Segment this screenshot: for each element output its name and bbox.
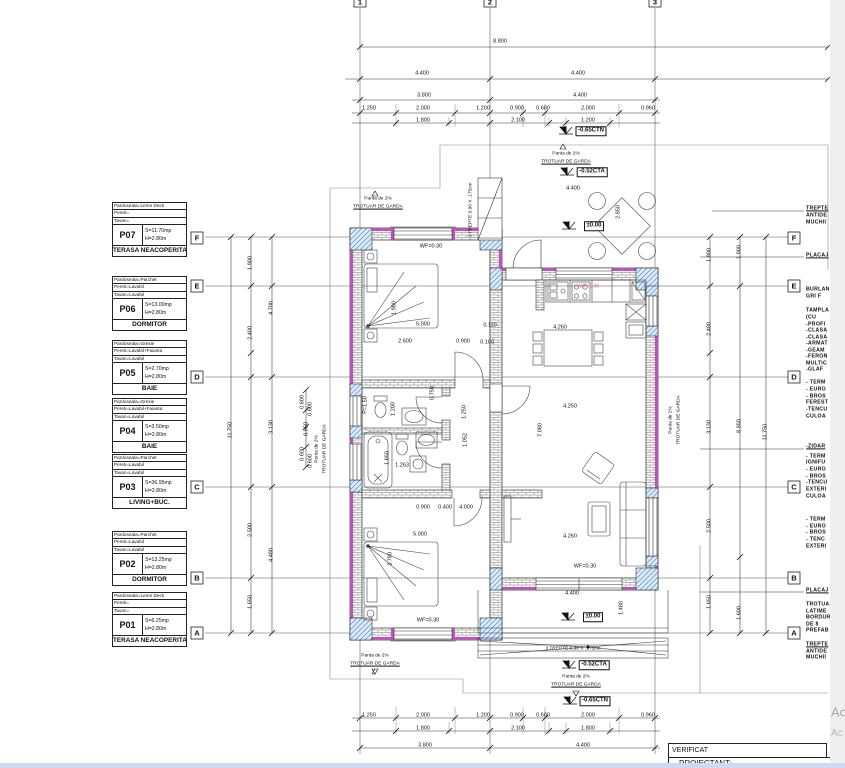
trotuar-label: TROTUAR DE GARDA xyxy=(324,424,329,474)
dim-label: -GLAF xyxy=(806,367,823,372)
dim-label: 3.130 xyxy=(707,420,713,434)
dim-label: MUCHII xyxy=(806,220,826,225)
grid-row-d-right: D xyxy=(791,373,796,381)
finish-row: Pardoseala=Parchet xyxy=(112,454,187,461)
room-area: S=6.25mp xyxy=(145,618,186,624)
dim-label: 1.900 xyxy=(737,245,743,259)
room-code-row: P07S=11.70mpH=2.80m xyxy=(112,224,187,246)
dim-label: FEREST xyxy=(806,400,828,405)
dim-label: 1.250 xyxy=(462,405,468,419)
room-name: DORMITOR xyxy=(112,320,187,331)
interior-doors xyxy=(416,352,530,526)
dim-label: 3.800 xyxy=(418,743,432,749)
room-height: H=2.80m xyxy=(145,432,186,438)
dim-label: 1.200 xyxy=(476,106,490,112)
dim-label: GRI F xyxy=(806,294,821,299)
level-cta-top: -0.52CTA xyxy=(577,167,608,177)
trotuar-label: TROTUAR DE GARDA xyxy=(350,663,400,668)
dim-label: -TENCU xyxy=(806,480,827,485)
legend-room-P03: Pardoseala=ParchetPereti=LavabilTavan=La… xyxy=(112,454,187,509)
grid-row-e-left: E xyxy=(194,282,199,290)
dim-label: 4.250 xyxy=(563,404,577,410)
finish-row: Pereti=Lavabil xyxy=(112,538,187,545)
slope-label: Panta de 2% xyxy=(552,153,579,158)
room-name: LIVING+BUC. xyxy=(112,498,187,509)
finish-row: Pardoseala=Lemn Deck xyxy=(112,202,187,209)
dim-label: 0.900 xyxy=(456,339,470,345)
dim-label: 4.700 xyxy=(269,301,275,315)
dim-label: EXTERI xyxy=(806,487,827,492)
interior-walls xyxy=(362,280,544,498)
slope-label: Panta de 2% xyxy=(670,406,675,433)
dim-label: 4.400 xyxy=(571,71,585,77)
grid-row-c-left: C xyxy=(194,483,199,491)
room-area: S=13.25mp xyxy=(145,557,186,563)
verificat-row: VERIFICAT xyxy=(668,743,827,758)
grid-row-a-left: A xyxy=(194,629,199,637)
room-name: BAIE xyxy=(112,442,187,453)
dim-label: - TERM xyxy=(806,517,826,522)
level-ctn-bottom: -0.65CTN xyxy=(579,696,610,706)
slope-label: Panta de 2% xyxy=(562,676,589,681)
finish-row: Pereti=Lavabil+Faianta xyxy=(112,405,187,412)
dim-label: 11.750 xyxy=(763,424,769,440)
window-sill-label: WF=0.30 xyxy=(574,564,596,570)
dim-label: - TERM xyxy=(806,380,826,385)
finish-row: Tavan=Lavabil xyxy=(112,291,187,298)
dim-label: IGNIFU xyxy=(806,460,825,465)
dim-label: 0.600 xyxy=(308,454,314,468)
grid-row-c-right: C xyxy=(791,483,796,491)
room-code: P04 xyxy=(113,421,143,441)
dim-label: 1.900 xyxy=(248,256,254,270)
dim-label: TROTUA xyxy=(806,602,829,607)
dim-label: 1.800 xyxy=(416,726,430,732)
dim-label: 2.100 xyxy=(511,726,525,732)
room-name: TERASA NEACOPERITA xyxy=(112,636,187,647)
dim-label: 2.100 xyxy=(511,118,525,124)
room-name: DORMITOR xyxy=(112,575,187,586)
finish-row: Tavan=Lavabil xyxy=(112,413,187,420)
room-height: H=2.80m xyxy=(145,310,186,316)
bed-bottom xyxy=(364,528,438,620)
dim-label: 2.000 xyxy=(416,106,430,112)
dim-label: -CLASA xyxy=(806,328,827,333)
stairs-note-bottom: 3 TREPTE 0.30 X .175cm xyxy=(545,648,600,653)
window-sill-label: WF=0.30 xyxy=(417,618,439,624)
dim-label: 1.650 xyxy=(707,595,713,609)
dim-label: 1.650 xyxy=(248,595,254,609)
dim-label: 4.400 xyxy=(576,743,590,749)
room-area: S=11.70mp xyxy=(145,228,186,234)
slope-label: Panta de 2% xyxy=(361,655,388,660)
finish-row: Tavan= xyxy=(112,217,187,224)
dim-label: 3.130 xyxy=(269,420,275,434)
finish-row: Pardoseala=Gresie xyxy=(112,340,187,347)
entrance-door xyxy=(506,240,542,280)
dimension-lines xyxy=(231,47,828,748)
finish-row: Pardoseala=Lemn Deck xyxy=(112,592,187,599)
dim-label: 0.600 xyxy=(536,106,550,112)
grid-row-f-right: F xyxy=(792,234,797,242)
dim-label: 1.800 xyxy=(581,726,595,732)
room-name: TERASA NEACOPERITA xyxy=(112,246,187,257)
dim-label: 2.000 xyxy=(416,713,430,719)
dim-label: 1.263 xyxy=(395,463,409,469)
dim-label: 4.260 xyxy=(553,325,567,331)
dim-label: TREPTE xyxy=(806,206,828,211)
room-code-row: P02S=13.25mpH=2.80m xyxy=(112,553,187,575)
dim-label: 1.250 xyxy=(362,713,376,719)
finish-row: Pardoseala=Parchet xyxy=(112,531,187,538)
room-code: P03 xyxy=(113,477,143,497)
room-code: P05 xyxy=(113,363,143,383)
dim-label: 0.750 xyxy=(430,386,436,400)
dim-label: 2.400 xyxy=(707,322,713,336)
dim-label: EXTERI xyxy=(806,544,827,549)
dim-label: 0.900 xyxy=(416,505,430,511)
dim-label: 1.480 xyxy=(619,601,625,615)
dim-label: 1.600 xyxy=(737,606,743,620)
dim-label: -TENCU xyxy=(806,407,827,412)
floor-plan-sheet: Pardoseala=Lemn DeckPereti=Tavan=P07S=11… xyxy=(0,0,845,768)
dim-label: 1.650 xyxy=(385,451,391,465)
stairs-top xyxy=(478,178,502,240)
dim-label: PLACAJ xyxy=(806,588,829,593)
legend-room-P07: Pardoseala=Lemn DeckPereti=Tavan=P07S=11… xyxy=(112,202,187,257)
dim-label: 1.900 xyxy=(707,248,713,262)
finish-row: Tavan=Lavabil xyxy=(112,546,187,553)
dim-label: 0.950 xyxy=(304,422,310,436)
grid-col-3: 3 xyxy=(653,0,657,6)
dim-label: 1.200 xyxy=(476,713,490,719)
grid-row-d-left: D xyxy=(194,373,199,381)
dim-label: - EURO xyxy=(806,467,826,472)
dim-label: 0.900 xyxy=(510,106,524,112)
dim-label: 4.400 xyxy=(415,71,429,77)
dim-label: 2.500 xyxy=(707,519,713,533)
dim-label: - EURO xyxy=(806,387,826,392)
legend-room-P01: Pardoseala=Lemn DeckPereti=Tavan=P01S=6.… xyxy=(112,592,187,647)
room-code-row: P03S=36.95mpH=2.80m xyxy=(112,476,187,498)
room-area: S=2.70mp xyxy=(145,366,186,372)
watermark: Ac xyxy=(831,706,845,719)
dim-label: TREPTE xyxy=(806,642,828,647)
kitchen xyxy=(533,280,646,366)
room-code-row: P01S=6.25mpH=2.80m xyxy=(112,614,187,636)
parapet-label: P=1.50 xyxy=(363,396,369,414)
dim-label: - BROS xyxy=(806,530,826,535)
slope-label: Panta de 2% xyxy=(364,198,391,203)
dim-label: 5.000 xyxy=(413,532,427,538)
room-area: S=3.50mp xyxy=(145,424,186,430)
slope-label: Panta de 2% xyxy=(316,435,321,462)
room-height: H=2.80m xyxy=(145,626,186,632)
watermark: Ac xyxy=(831,729,843,739)
trotuar-label: TROTUAR DE GARDA xyxy=(551,684,601,689)
room-code-row: P06S=13.00mpH=2.80m xyxy=(112,298,187,320)
dim-label: MUCHII xyxy=(806,655,826,660)
dim-label: -ARMAT xyxy=(806,341,828,346)
trotuar-label: TROTUAR DE GARDA xyxy=(678,395,683,445)
legend-room-P04: Pardoseala=GresiePereti=Lavabil+FaiantaT… xyxy=(112,398,187,453)
legend-room-P05: Pardoseala=GresiePereti=Lavabil+FaiantaT… xyxy=(112,340,187,395)
dim-label: 2.600 xyxy=(398,339,412,345)
bottom-edge-strip xyxy=(0,763,845,768)
grid-col-1: 1 xyxy=(358,0,362,6)
grid-row-b-left: B xyxy=(194,574,199,582)
room-area: S=36.95mp xyxy=(145,480,186,486)
room-code: P01 xyxy=(113,615,143,635)
dim-label: 0.600 xyxy=(300,395,306,409)
dim-label: 0.900 xyxy=(510,713,524,719)
dim-label: 2.500 xyxy=(248,523,254,537)
dim-label: 8.800 xyxy=(493,39,507,45)
dim-label: -ZIDAR xyxy=(806,444,825,449)
room-code: P02 xyxy=(113,554,143,574)
legend-room-P06: Pardoseala=ParchetPereti=LavabilTavan=La… xyxy=(112,276,187,331)
dim-label: 0.400 xyxy=(438,505,452,511)
finish-row: Pardoseala=Parchet xyxy=(112,276,187,283)
finish-row: Tavan=Lavabil xyxy=(112,469,187,476)
dim-label: 0.110 xyxy=(483,323,496,329)
window-sill-label: WF=0.30 xyxy=(420,244,442,250)
dim-label: 4.480 xyxy=(269,548,275,562)
dim-label: 1.200 xyxy=(581,118,595,124)
dim-label: 1.052 xyxy=(463,433,469,447)
dim-label: CULOA xyxy=(806,414,826,419)
finish-row: Pereti= xyxy=(112,599,187,606)
dim-label: 0.960 xyxy=(641,106,655,112)
grid-row-a-right: A xyxy=(791,629,796,637)
level-symbols xyxy=(372,126,579,704)
dim-label: -FERON xyxy=(806,354,828,359)
window-sill-label: WF=0.90 xyxy=(579,285,599,290)
dim-label: 4.000 xyxy=(459,505,473,511)
dim-label: 0.600 xyxy=(300,447,306,461)
room-code: P06 xyxy=(113,299,143,319)
dim-label: 0.960 xyxy=(641,713,655,719)
grid-row-f-left: F xyxy=(195,234,200,242)
dim-label: 2.000 xyxy=(581,106,595,112)
finish-row: Pereti=Lavabil+Faianta xyxy=(112,347,187,354)
dim-label: BORDUR xyxy=(806,615,831,620)
finish-row: Tavan=Lavabil xyxy=(112,355,187,362)
living xyxy=(504,451,646,566)
dim-label: PLACAJ xyxy=(806,253,829,258)
room-height: H=2.80m xyxy=(145,488,186,494)
dim-label: (CU xyxy=(806,315,816,320)
grid-col-2: 2 xyxy=(488,0,492,6)
level-ctn-top: -0.65CTN xyxy=(575,126,606,136)
bed-top xyxy=(364,250,438,342)
dim-label: 3.780 xyxy=(388,552,394,566)
dim-label: 2.000 xyxy=(581,713,595,719)
dim-label: 0.600 xyxy=(536,713,550,719)
finish-row: Pereti=Lavabil xyxy=(112,283,187,290)
dim-label: 0.600 xyxy=(308,402,314,416)
dim-label: TAMPLA xyxy=(806,308,829,313)
room-code-row: P04S=3.50mpH=2.80m xyxy=(112,420,187,442)
room-height: H=2.80m xyxy=(145,565,186,571)
dim-label: 3.800 xyxy=(417,93,431,99)
dim-label: 1.800 xyxy=(416,118,430,124)
dim-label: ANTIDE xyxy=(806,213,827,218)
dim-label: 11.750 xyxy=(228,422,234,438)
finish-row: Pardoseala=Gresie xyxy=(112,398,187,405)
room-name: BAIE xyxy=(112,384,187,395)
room-height: H=2.80m xyxy=(145,236,186,242)
dim-label: 1.250 xyxy=(362,106,376,112)
dim-label: 2.400 xyxy=(248,326,254,340)
dim-label: 1.200 xyxy=(391,402,397,416)
room-area: S=13.00mp xyxy=(145,302,186,308)
room-code: P07 xyxy=(113,225,143,245)
room-code-row: P05S=2.70mpH=2.80m xyxy=(112,362,187,384)
right-margin-strip xyxy=(830,0,845,768)
finish-row: Pereti=Lavabil xyxy=(112,461,187,468)
level-zero-terrace: ±0.00 xyxy=(584,221,604,231)
dim-label: 4.400 xyxy=(566,186,580,192)
dim-label: BURLAN xyxy=(806,287,830,292)
trotuar-label: TROTUAR DE GARDA xyxy=(353,206,403,211)
dim-label: CULOA xyxy=(806,494,826,499)
grid-row-e-right: E xyxy=(791,282,796,290)
dim-label: 8.850 xyxy=(737,419,743,433)
dim-label: 5.000 xyxy=(416,322,430,328)
room-height: H=2.80m xyxy=(145,374,186,380)
dim-label: 7.080 xyxy=(538,423,544,437)
level-zero-bottom: ±0.00 xyxy=(583,612,603,622)
finish-row: Tavan= xyxy=(112,607,187,614)
dim-label: 4.260 xyxy=(563,534,577,540)
dim-label: 4.400 xyxy=(565,591,579,597)
dim-label: 4.400 xyxy=(573,93,587,99)
dim-label: 2.850 xyxy=(616,205,622,219)
dim-label: - TENC xyxy=(806,537,825,542)
trotuar-label: TROTUAR DE GARDA xyxy=(541,161,591,166)
dim-label: PREFAB xyxy=(806,628,829,633)
level-cta-bottom: -0.52CTA xyxy=(579,660,610,670)
stairs-note-top: 3 TREPTE 0.90 X .175cm xyxy=(470,182,475,237)
legend-room-P02: Pardoseala=ParchetPereti=LavabilTavan=La… xyxy=(112,531,187,586)
dim-label: 1.900 xyxy=(392,301,398,315)
grid-row-b-right: B xyxy=(791,574,796,582)
dim-label: 0.100 xyxy=(480,340,494,346)
finish-row: Pereti= xyxy=(112,209,187,216)
